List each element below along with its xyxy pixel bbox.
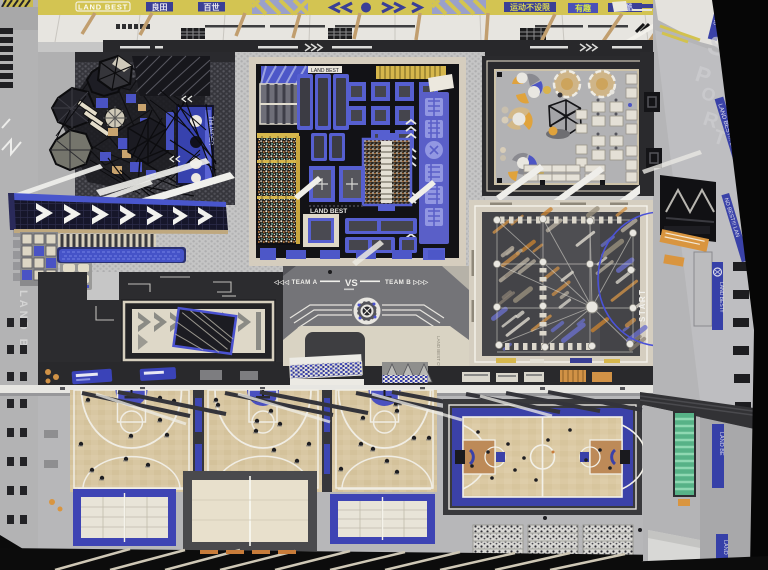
svg-text:START: START	[638, 288, 647, 322]
svg-text:TEAM B ▷▷▷: TEAM B ▷▷▷	[385, 279, 429, 286]
svg-text:LAND BEST: LAND BEST	[78, 3, 128, 12]
svg-text:运动不设限: 运动不设限	[510, 2, 550, 12]
svg-text:LAND BEST: LAND BEST	[310, 208, 347, 215]
svg-text:LAND BEST!!: LAND BEST!!	[718, 282, 724, 313]
svg-text:有趣: 有趣	[575, 3, 592, 13]
svg-text:LAND BEST: LAND BEST	[311, 68, 339, 74]
svg-text:◁◁◁ TEAM A: ◁◁◁ TEAM A	[273, 279, 318, 286]
svg-text:百世: 百世	[204, 2, 220, 12]
svg-text:LAND BE: LAND BE	[718, 432, 724, 456]
svg-text:VS: VS	[345, 278, 358, 289]
svg-text:良田: 良田	[152, 2, 168, 12]
svg-text:LAND: LAND	[722, 540, 728, 555]
